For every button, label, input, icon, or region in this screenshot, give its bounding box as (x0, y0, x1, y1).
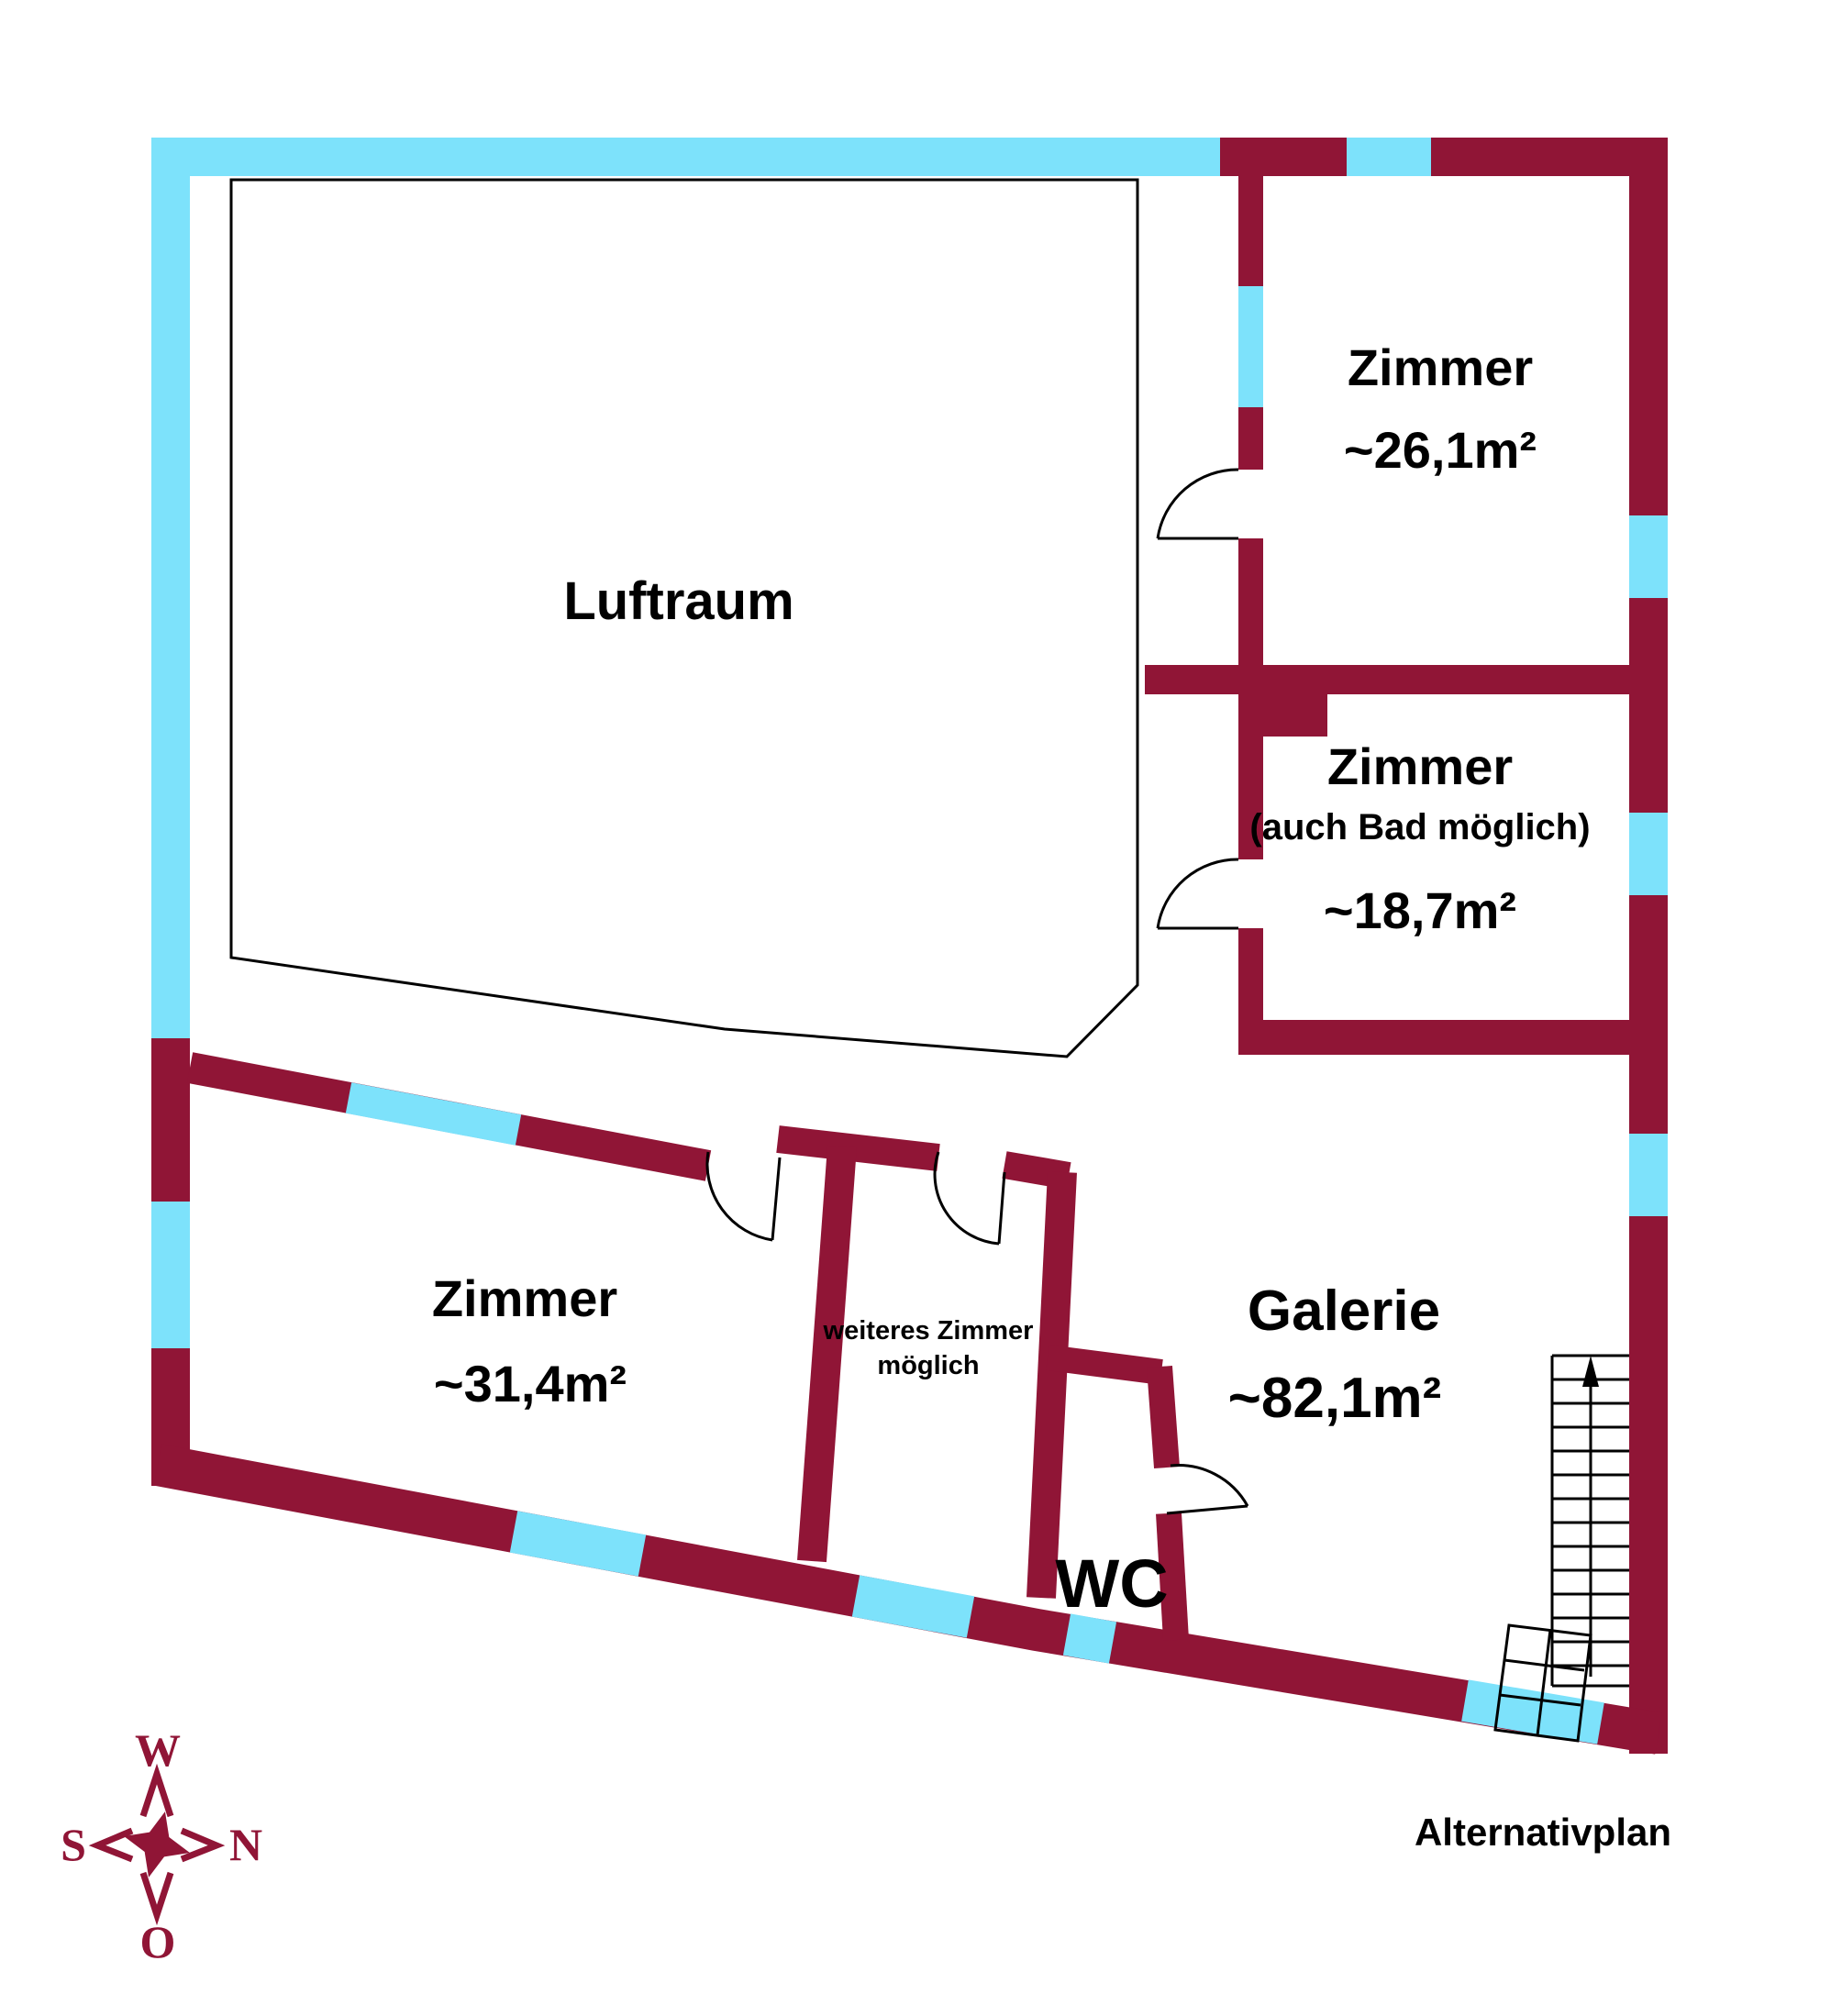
wall-bottom-18-7 (1238, 1020, 1629, 1055)
label-zimmer-26-1-name: Zimmer (1348, 338, 1533, 396)
window-right-3 (1629, 1134, 1668, 1216)
wall-wc-top (1048, 1357, 1161, 1372)
label-galerie-name: Galerie (1248, 1279, 1440, 1343)
plan-title: Alternativplan (1415, 1811, 1671, 1854)
compass-letter-down: O (140, 1916, 176, 1967)
stairs (1495, 1356, 1629, 1741)
window-bottom-2 (856, 1596, 971, 1617)
floor-plan-canvas: Luftraum Zimmer ~26,1m² Zimmer (auch Bad… (0, 0, 1842, 2016)
window-right-2 (1629, 813, 1668, 895)
label-zimmer-18-7-area: ~18,7m² (1324, 881, 1516, 939)
wall-weiteres-left (812, 1146, 842, 1561)
window-bottom-1 (514, 1532, 642, 1556)
window-corridor-wall (1238, 286, 1263, 407)
compass-chevron-up (143, 1774, 171, 1816)
label-weiteres-zimmer-2: möglich (877, 1351, 979, 1380)
door-zimmer-31-4 (707, 1152, 780, 1240)
compass: W S N O (61, 1724, 262, 1967)
label-zimmer-18-7-note: (auch Bad möglich) (1249, 807, 1590, 847)
label-galerie-area: ~82,1m² (1228, 1367, 1442, 1430)
window-top-long (151, 138, 1220, 176)
wall-wc-right-upper (1160, 1367, 1167, 1468)
window-top-31-4 (349, 1098, 518, 1130)
door-zimmer-18-7 (1158, 859, 1238, 928)
wall-between-right-rooms (1145, 665, 1629, 694)
label-zimmer-31-4-area: ~31,4m² (434, 1355, 627, 1412)
compass-letter-left: S (61, 1819, 86, 1870)
compass-letter-up: W (135, 1724, 181, 1776)
floor-plan: Luftraum Zimmer ~26,1m² Zimmer (auch Bad… (0, 0, 1842, 2016)
window-bottom-3 (1067, 1634, 1113, 1643)
window-left-lower (151, 1202, 190, 1348)
compass-chevron-left (97, 1831, 132, 1859)
wall-weiteres-right (1041, 1172, 1062, 1598)
window-right-1 (1629, 515, 1668, 598)
compass-star-icon (116, 1803, 198, 1886)
door-zimmer-26-1 (1158, 470, 1238, 538)
wall-right (1629, 138, 1668, 1754)
label-luftraum: Luftraum (563, 571, 793, 631)
wall-wc-right-lower (1169, 1513, 1176, 1640)
compass-chevron-down (143, 1873, 171, 1915)
compass-letter-right: N (229, 1819, 262, 1870)
label-zimmer-26-1-area: ~26,1m² (1344, 421, 1537, 479)
label-zimmer-31-4-name: Zimmer (432, 1269, 617, 1327)
compass-chevron-right (182, 1831, 216, 1859)
wall-stub-18-7 (1263, 694, 1327, 737)
window-top-right (1347, 138, 1431, 176)
label-weiteres-zimmer-1: weiteres Zimmer (823, 1316, 1034, 1346)
label-zimmer-18-7-name: Zimmer (1327, 737, 1513, 795)
wall-weiteres-top (778, 1139, 938, 1158)
door-wc (1167, 1466, 1248, 1513)
window-left-long (151, 138, 190, 1038)
door-weiteres-zimmer (935, 1152, 1004, 1244)
label-wc: WC (1055, 1545, 1168, 1622)
